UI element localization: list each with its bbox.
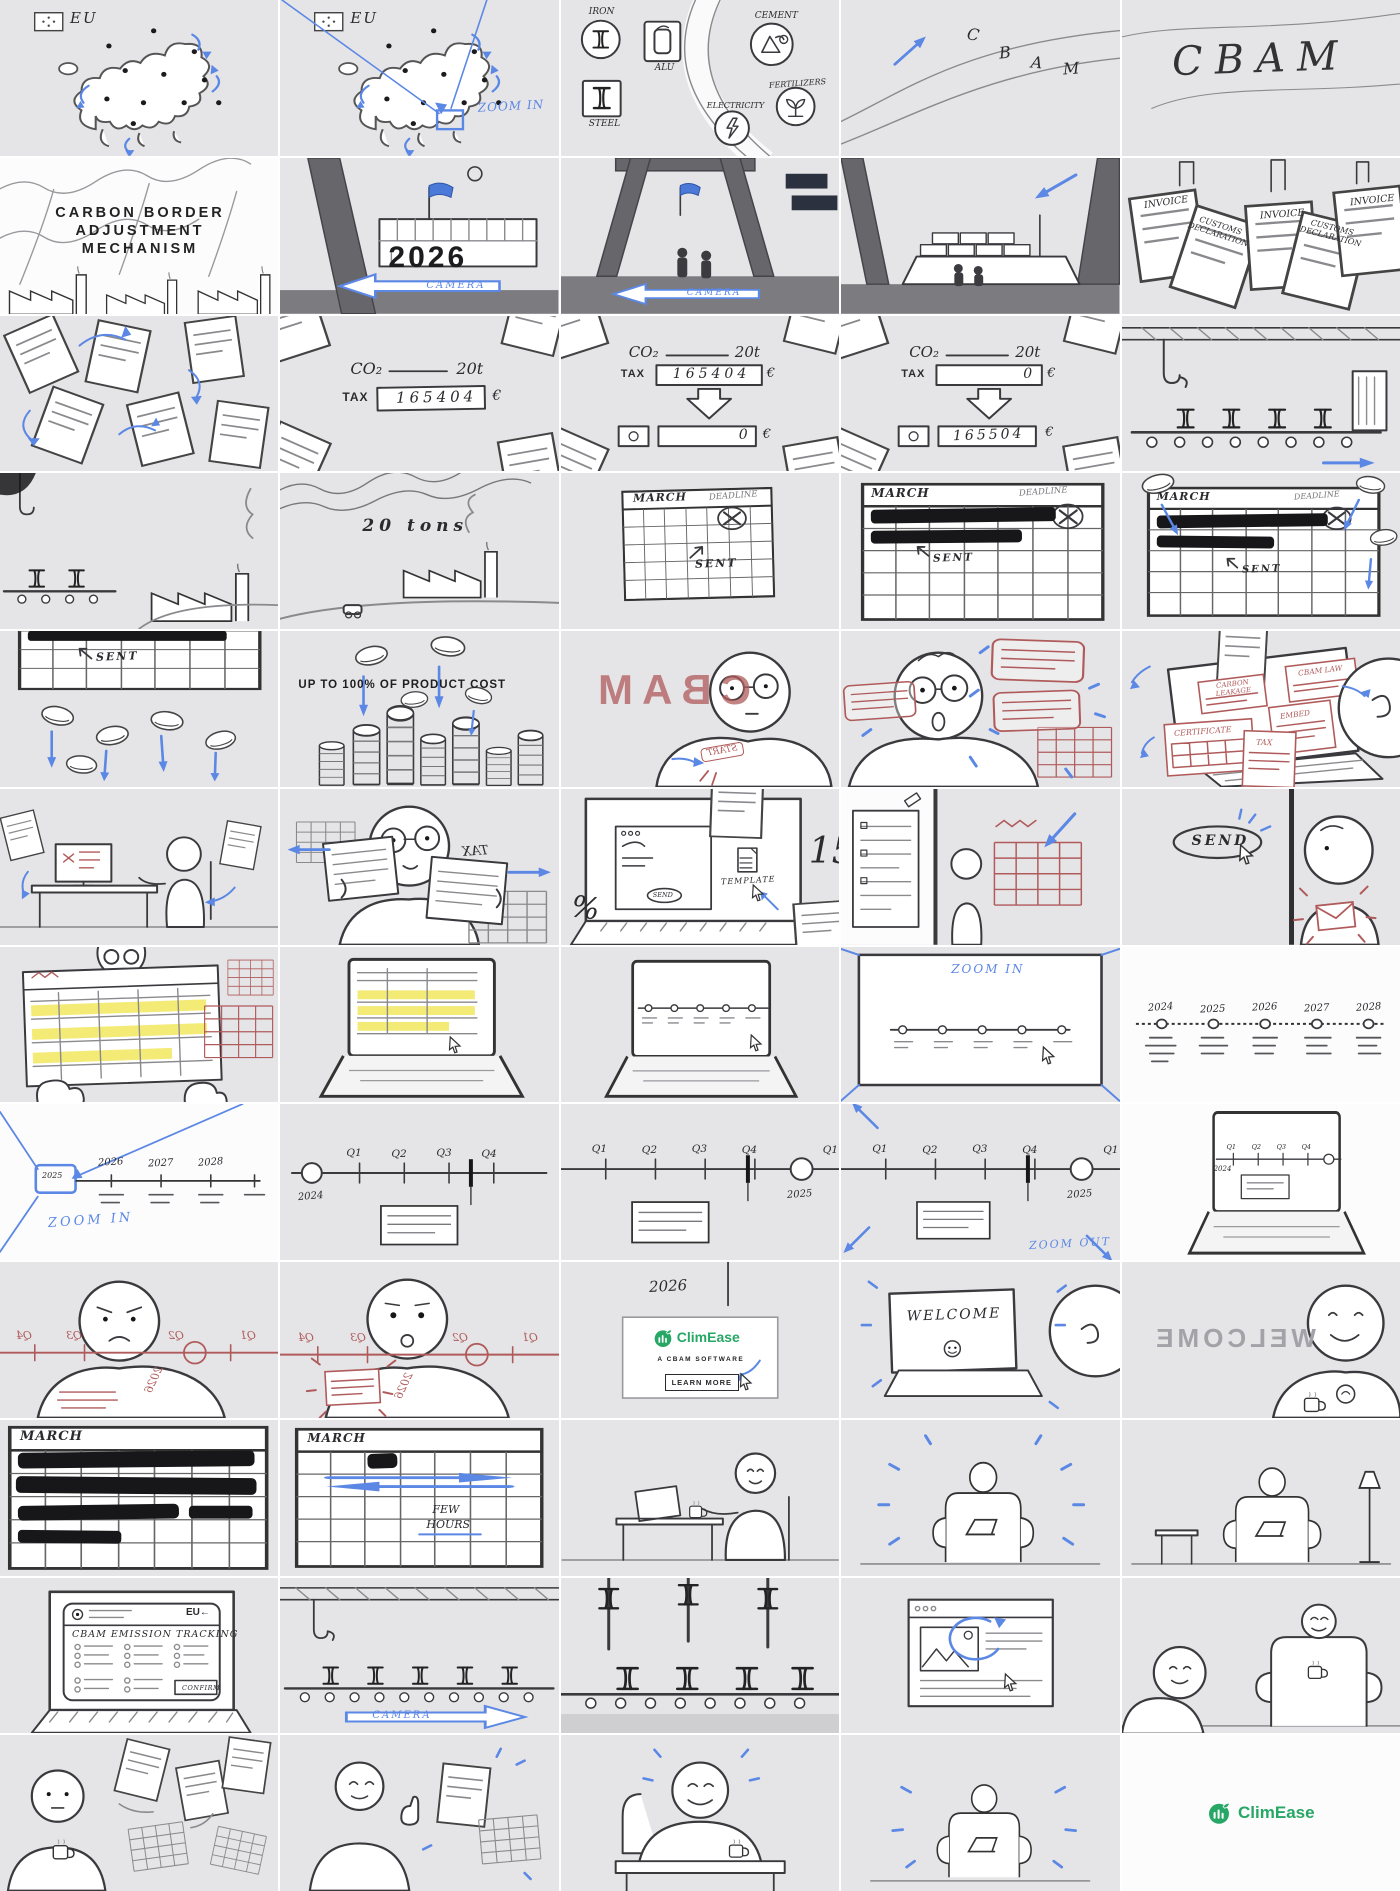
quarter-label: Q2 <box>642 1145 657 1156</box>
frame-climease-logo: ClimEase <box>1122 1735 1400 1891</box>
factory-icon <box>404 536 497 598</box>
tax-value: 165404 <box>396 388 478 406</box>
armchair-final-sketch <box>841 1735 1119 1891</box>
zoom-in-annotation: ZOOM IN <box>951 963 1024 976</box>
floor-lamp-icon <box>1359 1472 1379 1562</box>
frame-content-worker <box>561 1735 839 1891</box>
letter-m: M <box>1063 59 1081 77</box>
red-calendar-sketch <box>995 842 1082 905</box>
quarter-label: Q3 <box>972 1144 987 1155</box>
flying-papers-sketch <box>0 316 278 472</box>
frame-quarters-2025: Q1 Q2 Q3 Q4 Q1 2025 <box>561 1104 839 1260</box>
blue-arrow-icon <box>892 33 930 68</box>
frame-climease-card: 2026 ClimEase A CBAM SOFTWARE LEARN MORE <box>561 1262 839 1418</box>
shocked-person-sketch <box>841 631 1119 787</box>
percent-sign: % <box>569 891 602 927</box>
frame-tracking-app: CBAM EMISSION TRACKING EU← CONFIRM <box>0 1578 278 1734</box>
calendar-sketch <box>561 473 839 629</box>
eu-flag-icon <box>35 13 63 31</box>
frame-calendar-few-hours: MARCH FEW HOURS <box>280 1420 558 1576</box>
frame-steel-conveyor <box>1122 316 1400 472</box>
frame-co2-tax-redirected: CO₂ 20t TAX 0 € 165504 € <box>841 316 1119 472</box>
result-value: 165504 <box>953 426 1025 444</box>
frame-relaxing-chair <box>1122 1578 1400 1734</box>
mirrored-quarter-label: Q1 <box>240 1330 256 1342</box>
frame-send-click: SEND <box>1122 789 1400 945</box>
factory-icon <box>152 557 249 621</box>
steel-label: STEEL <box>589 120 620 130</box>
send-button-label: SEND <box>653 892 673 899</box>
frame-relaxed-desk <box>561 1420 839 1576</box>
storyboard-grid: EU EU ZOOM IN IRON ALU STEEL CEMENT ELEC… <box>0 0 1400 1891</box>
frame-screen-documents: CARBON LEAKAGE CBAM LAW EMBED CERTIFICAT… <box>1122 631 1400 787</box>
cursor-icon <box>749 1033 764 1052</box>
eu-label: EU <box>350 10 378 26</box>
armchair-person-sketch <box>841 1420 1119 1576</box>
tracking-app-sketch <box>0 1578 278 1734</box>
hours-label: HOURS <box>426 1519 470 1531</box>
frame-worried-reflection: Q4 Q3 Q2 Q1 2026 <box>0 1262 278 1418</box>
quarter-label: Q4 <box>1022 1145 1037 1156</box>
quarter-label: Q4 <box>742 1145 757 1156</box>
boxed-year-label: 2025 <box>42 1172 62 1181</box>
person-in-armchair <box>937 1785 1031 1877</box>
blue-arrow-icon <box>1323 457 1374 467</box>
next-quarter-label: Q1 <box>1103 1145 1118 1156</box>
month-label: MARCH <box>20 1430 83 1444</box>
quarter-label: Q3 <box>436 1148 451 1159</box>
frame-browser-refresh <box>841 1578 1119 1734</box>
year-label: 2027 <box>148 1159 174 1171</box>
eu-label: EU <box>70 10 98 26</box>
quarter-label: Q1 <box>592 1144 607 1155</box>
send-button-label: SEND <box>1192 834 1250 849</box>
co2-label: CO₂ <box>629 344 659 360</box>
calendar-grid <box>622 488 774 600</box>
frame-cbam-fulltext: CARBON BORDER ADJUSTMENT MECHANISM <box>0 158 278 314</box>
send-click-sketch <box>1122 789 1400 945</box>
climease-logo-icon <box>653 1328 673 1348</box>
sector-icons-sketch <box>561 0 839 156</box>
quarter-label: Q2 <box>1252 1144 1261 1151</box>
person-in-armchair <box>933 1462 1033 1561</box>
papers-settle-sketch <box>0 1735 278 1891</box>
frame-armchair-glow <box>841 1420 1119 1576</box>
quarter-label: Q1 <box>346 1148 361 1159</box>
content-worker-sketch <box>561 1735 839 1891</box>
month-label: MARCH <box>633 492 687 505</box>
coin-stacks-sketch <box>280 631 558 787</box>
note-card-sketch <box>381 1206 458 1245</box>
quarters-timeline-sketch <box>280 1104 558 1260</box>
title-line1: CARBON BORDER <box>30 206 250 222</box>
note-card-sketch <box>917 1202 990 1239</box>
year-2026: 2026 <box>388 242 467 274</box>
frame-person-papers: TAX <box>280 789 558 945</box>
factory-interior-exterior-sketch <box>0 473 278 629</box>
year-label: 2028 <box>1355 1002 1381 1015</box>
frame-welcome-screen: WELCOME <box>841 1262 1119 1418</box>
frame-eu-map-zoom: EU ZOOM IN <box>280 0 558 156</box>
year-label: 2026 <box>1251 1002 1277 1014</box>
envelope-icon <box>1316 902 1355 930</box>
frame-2026-factory: 2026 CAMERA <box>280 158 558 314</box>
armchair-lamp-sketch <box>1122 1420 1400 1576</box>
frame-product-cost: UP TO 100% OF PRODUCT COST <box>280 631 558 787</box>
year-label: 2025 <box>1067 1189 1093 1202</box>
quarters-timeline-sketch <box>561 1104 839 1260</box>
year-label: 2025 <box>786 1189 812 1202</box>
confirm-button-label: CONFIRM <box>182 1685 220 1692</box>
frame-calendar-coins: MARCH DEADLINE SENT <box>1122 473 1400 629</box>
mirrored-quarter-label: Q4 <box>16 1330 32 1342</box>
factory-icon <box>9 261 86 314</box>
split-scene-sketch <box>841 789 1119 945</box>
cement-label: CEMENT <box>755 12 798 22</box>
factory-icon <box>107 267 177 314</box>
euro-sign: € <box>767 367 775 381</box>
euro-sign: € <box>1045 426 1053 440</box>
calendar-grid <box>1148 488 1379 616</box>
mirrored-quarter-label: Q3 <box>350 1332 366 1344</box>
factory-icon <box>198 261 270 314</box>
next-quarter-label: Q1 <box>823 1145 838 1156</box>
few-label: FEW <box>432 1504 459 1516</box>
frame-cbam-title: CBAM <box>1122 0 1400 156</box>
tons-value: 20t <box>456 360 483 377</box>
laptop-timeline-sketch <box>561 947 839 1103</box>
frame-armchair-final <box>841 1735 1119 1891</box>
sent-label: SENT <box>96 650 139 663</box>
learn-more-button: LEARN MORE <box>665 1374 739 1391</box>
mirrored-quarter-label: Q2 <box>168 1330 184 1342</box>
frame-timeline-on-laptop: Q1 Q2 Q3 Q4 2024 <box>1122 1104 1400 1260</box>
years-timeline-sketch <box>1122 947 1400 1103</box>
iron-label: IRON <box>589 8 615 18</box>
factory-smoke-sketch <box>280 473 558 629</box>
frame-flying-papers <box>0 316 278 472</box>
camera-label: CAMERA <box>687 289 741 299</box>
frame-spreadsheet-laptop <box>280 947 558 1103</box>
note-card-sketch <box>632 1202 709 1242</box>
frame-calendar-fully-blocked: MARCH <box>0 1420 278 1576</box>
browser-window-sketch <box>841 1578 1119 1734</box>
co2-tax-arrow-sketch <box>561 316 839 472</box>
brand-name: ClimEase <box>1238 1803 1315 1823</box>
cursor-icon <box>1003 1672 1019 1692</box>
frame-co2-tax-waived: CO₂ 20t TAX 165404 € 0 € <box>561 316 839 472</box>
frame-customs-documents: INVOICE CUSTOMS DECLARATION INVOICE CUST… <box>1122 158 1400 314</box>
worried-person-sketch <box>0 1262 278 1418</box>
eu-flag-icon <box>315 13 343 31</box>
cbam-mirrored-title: CBAM <box>589 667 751 712</box>
frame-co2-tax: CO₂ 20t TAX 165404 € <box>280 316 558 472</box>
blue-arrow-icon <box>1032 170 1078 202</box>
quarter-label: Q4 <box>1302 1144 1311 1151</box>
calendar-grid <box>297 1429 542 1566</box>
tax-label: TAX <box>901 369 925 381</box>
co2-label: CO₂ <box>909 344 939 360</box>
frame-years-timeline: 2024 2025 2026 2027 2028 <box>1122 947 1400 1103</box>
frame-spreadsheet-hands <box>0 947 278 1103</box>
relaxing-person-sketch <box>1122 1578 1400 1734</box>
coins-falling-sketch <box>0 631 278 787</box>
quarter-label: Q2 <box>922 1145 937 1156</box>
euro-sign: € <box>763 428 771 442</box>
cursor-icon <box>739 1372 754 1391</box>
mirrored-quarter-label: Q4 <box>298 1332 314 1344</box>
euro-sign: € <box>1047 367 1055 381</box>
title-line2: ADJUSTMENT <box>30 224 250 240</box>
frame-welcome-mirrored: WELCOME <box>1122 1262 1400 1418</box>
tax-label: TAX <box>342 391 368 404</box>
mirrored-quarter-label: Q2 <box>452 1332 468 1344</box>
laptop-documents-sketch <box>1122 631 1400 787</box>
sent-label: SENT <box>1241 565 1281 577</box>
smoke-letters-sketch <box>841 0 1119 156</box>
tons-amount: 20 tons <box>362 517 468 535</box>
sent-label: SENT <box>933 553 974 566</box>
year-label: 2026 <box>648 1277 687 1295</box>
camera-label: CAMERA <box>372 1711 431 1722</box>
alu-label: ALU <box>655 64 675 74</box>
frame-cbam-mirrored: CBAM START <box>561 631 839 787</box>
year-label: 2026 <box>98 1158 124 1170</box>
person-holding-papers-sketch <box>280 789 558 945</box>
frame-thumbs-up <box>280 1735 558 1891</box>
frame-quarters-zoom-out: Q1 Q2 Q3 Q4 Q1 2025 ZOOM OUT <box>841 1104 1119 1260</box>
frame-sector-icons: IRON ALU STEEL CEMENT ELECTRICITY FERTIL… <box>561 0 839 156</box>
red-overlay-grid <box>228 960 273 995</box>
desk-work-sketch <box>0 789 278 945</box>
frame-papers-settle <box>0 1735 278 1891</box>
frame-coins-falling: SENT <box>0 631 278 787</box>
laptop-sketch <box>606 961 796 1096</box>
number-15: 15 <box>809 833 839 872</box>
eu-map-zoom-sketch <box>280 0 558 156</box>
tagline: A CBAM SOFTWARE <box>623 1356 779 1363</box>
cursor-icon <box>1041 1045 1057 1065</box>
zoom-target-sketch <box>0 1104 278 1260</box>
frame-port-crane: CAMERA <box>561 158 839 314</box>
relaxed-desk-sketch <box>561 1420 839 1576</box>
tax-doc-label: TAX <box>1255 739 1272 748</box>
frame-person-overwhelmed <box>841 631 1119 787</box>
person-in-armchair <box>1223 1468 1320 1562</box>
cbam-title: CBAM <box>1171 35 1350 84</box>
thumbs-up-sketch <box>280 1735 558 1891</box>
quarter-label: Q2 <box>391 1149 406 1160</box>
frame-cbam-letters-appear: C B A M <box>841 0 1119 156</box>
tax-value: 0 <box>1023 367 1032 382</box>
frame-person-at-desk <box>0 789 278 945</box>
month-label: MARCH <box>1157 491 1211 503</box>
quarter-label: Q4 <box>481 1149 496 1160</box>
frame-timeline-zoom-in: ZOOM IN <box>841 947 1119 1103</box>
frame-eu-map: EU <box>0 0 278 156</box>
calendar-grid <box>10 1427 267 1568</box>
frame-timeline-zoom-2026: 2025 2026 2027 2028 ZOOM IN <box>0 1104 278 1260</box>
year-label: 2025 <box>1199 1004 1225 1016</box>
laptop-quarters-sketch <box>1122 1104 1400 1260</box>
quarter-label: Q3 <box>1277 1144 1286 1151</box>
quarter-label: Q3 <box>692 1144 707 1155</box>
beams-closeup-sketch <box>561 1578 839 1734</box>
frame-armchair-lamp <box>1122 1420 1400 1576</box>
tax-value: 165404 <box>673 367 750 382</box>
year-label: 2024 <box>1147 1002 1173 1015</box>
result-value: 0 <box>739 428 748 443</box>
climease-lockup: ClimEase <box>1122 1735 1400 1891</box>
laptop-spreadsheet-sketch <box>280 947 558 1103</box>
surprised-person-sketch <box>280 1262 558 1418</box>
tons-value: 20t <box>735 344 760 360</box>
electricity-label: ELECTRICITY <box>707 102 765 111</box>
tax-label: TAX <box>621 369 645 381</box>
letter-b: B <box>998 43 1012 61</box>
frame-timeline-laptop <box>561 947 839 1103</box>
frame-factory-camera-pan: CAMERA <box>280 1578 558 1734</box>
frame-factory-shots <box>0 473 278 629</box>
year-label: 2028 <box>198 1157 224 1170</box>
cursor-icon <box>448 1035 463 1054</box>
conveyor-sketch <box>1122 316 1400 472</box>
frame-20-tons: 20 tons <box>280 473 558 629</box>
brand-name: ClimEase <box>677 1330 740 1345</box>
cursor-icon <box>751 883 766 902</box>
camera-label: CAMERA <box>426 281 485 292</box>
spreadsheet-hands-sketch <box>0 947 278 1103</box>
red-table-sketch <box>1038 727 1112 777</box>
climease-logo-icon <box>1207 1801 1231 1825</box>
co2-label: CO₂ <box>350 360 382 377</box>
mirrored-quarter-label: Q1 <box>522 1332 538 1344</box>
frame-quarters-2024: Q1 Q2 Q3 Q4 2024 <box>280 1104 558 1260</box>
laptop-template-sketch <box>561 789 839 945</box>
cost-caption: UP TO 100% OF PRODUCT COST <box>298 679 506 691</box>
quarter-label: Q1 <box>1227 1144 1236 1151</box>
welcome-laptop-sketch <box>841 1262 1119 1418</box>
year-label: 2024 <box>1214 1166 1232 1174</box>
factory-2026-sketch <box>280 158 558 314</box>
frame-split-doc-calendar <box>841 789 1119 945</box>
frame-port-ship <box>841 158 1119 314</box>
frame-surprised-notification: Q4 Q3 Q2 Q1 2026 <box>280 1262 558 1418</box>
port-ship-sketch <box>841 158 1119 314</box>
frame-beams-closeup <box>561 1578 839 1734</box>
mirrored-quarter-label: Q3 <box>66 1330 82 1342</box>
eu-map-sketch <box>0 0 278 156</box>
frame-calendar-deadline: MARCH DEADLINE SENT <box>561 473 839 629</box>
eu-label: EU← <box>186 1608 210 1619</box>
co2-tax-arrow-sketch <box>841 316 1119 472</box>
sent-label: SENT <box>695 558 738 571</box>
frame-template-screen: SEND TEMPLATE % 15 <box>561 789 839 945</box>
tons-value: 20t <box>1015 344 1040 360</box>
frame-calendar-redacted: MARCH DEADLINE SENT <box>841 473 1119 629</box>
mirrored-tax-label: TAX <box>462 844 490 860</box>
app-title: CBAM EMISSION TRACKING <box>72 1630 238 1640</box>
mirrored-welcome-text: WELCOME <box>1134 1324 1334 1352</box>
letter-a: A <box>1030 54 1043 72</box>
year-label: 2027 <box>1303 1003 1329 1015</box>
month-label: MARCH <box>307 1432 365 1445</box>
euro-sign: € <box>492 389 501 404</box>
quarter-label: Q1 <box>872 1144 887 1155</box>
title-line3: MECHANISM <box>30 242 250 258</box>
month-label: MARCH <box>871 487 929 500</box>
